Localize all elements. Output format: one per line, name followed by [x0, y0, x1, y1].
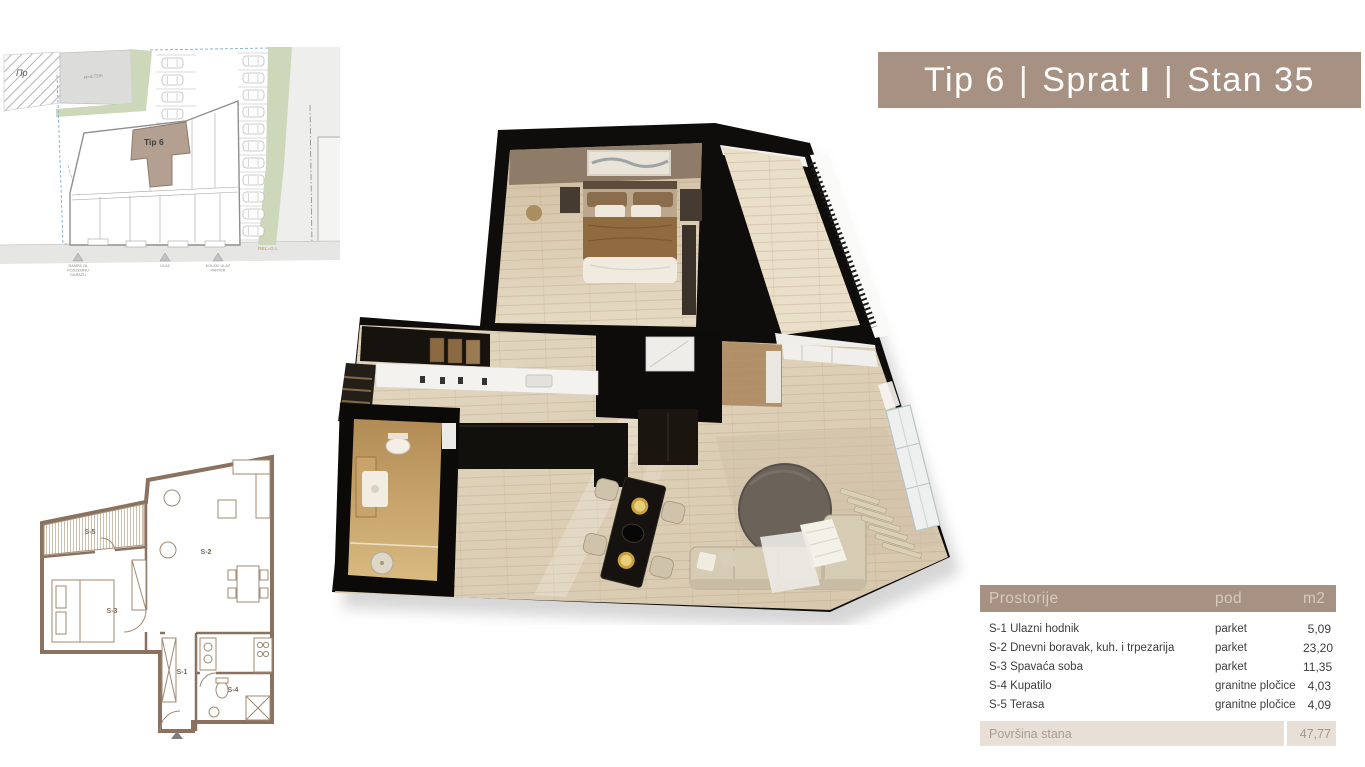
- column-header-m2: m2: [1303, 590, 1337, 608]
- room-area: 11,35: [1303, 660, 1337, 674]
- bedroom: [495, 143, 702, 327]
- table-row: S-2 Dnevni boravak, kuh. i trpezarija pa…: [980, 638, 1336, 657]
- pillow: [719, 550, 737, 568]
- page: Tip 6 | Sprat I | Stan 35: [0, 0, 1365, 767]
- title-banner: Tip 6 | Sprat I | Stan 35: [878, 52, 1361, 108]
- room-label-s5: S-5: [85, 529, 96, 536]
- table-header: Prostorije pod m2: [980, 585, 1336, 612]
- bed: [583, 181, 677, 283]
- site-plan: Пр H=4.72m: [0, 45, 340, 277]
- room-floor-material: parket: [1215, 642, 1303, 654]
- floor-plan-2d: S-5 S-3 S-2 S-1 S-4: [0, 400, 320, 767]
- column-header-prostorije: Prostorije: [980, 590, 1215, 608]
- sink: [526, 375, 552, 387]
- room-label-s1: S-1: [177, 669, 188, 676]
- toilet: [386, 438, 410, 454]
- marker-garage-label: PODZEMNU: [67, 269, 89, 273]
- regulation-label: REL=G.L: [258, 246, 278, 252]
- banner-separator: |: [1019, 61, 1029, 100]
- table-row: S-4 Kupatilo granitne pločice 4,03: [980, 676, 1336, 695]
- room-name: S-3 Spavaća soba: [980, 661, 1215, 673]
- area-table: Prostorije pod m2 S-1 Ulazni hodnik park…: [980, 585, 1336, 746]
- table-row: S-3 Spavaća soba parket 11,35: [980, 657, 1336, 676]
- nightstand: [560, 187, 580, 213]
- room-floor-material: parket: [1215, 623, 1303, 635]
- room-floor-material: granitne pločice: [1215, 680, 1303, 692]
- door: [766, 351, 781, 403]
- banner-apartment: Stan 35: [1187, 61, 1315, 100]
- banner-floor-label: Sprat: [1042, 61, 1131, 100]
- marker-garage-label: GARAŽU: [70, 272, 86, 277]
- room-name: S-2 Dnevni boravak, kuh. i trpezarija: [980, 642, 1215, 654]
- bathroom: [334, 403, 460, 597]
- room-name: S-4 Kupatilo: [980, 680, 1215, 692]
- banner-unit-type: Tip 6: [924, 61, 1006, 100]
- marker-entrance-label: ULAZ: [160, 264, 170, 268]
- marker-vehicle-label: PARTER: [210, 269, 225, 273]
- column-header-pod: pod: [1215, 590, 1303, 608]
- room-label-s4: S-4: [228, 687, 239, 694]
- room-label-s3: S-3: [107, 608, 118, 615]
- plant: [526, 205, 542, 221]
- room-area: 23,20: [1303, 641, 1338, 655]
- room-name: S-1 Ulazni hodnik: [980, 623, 1215, 635]
- table-body: S-1 Ulazni hodnik parket 5,09 S-2 Dnevni…: [980, 612, 1336, 714]
- room-area: 5,09: [1303, 622, 1336, 636]
- room-area: 4,03: [1303, 679, 1336, 693]
- zone-label: Пр: [16, 68, 28, 78]
- hatched-zone: [4, 52, 60, 111]
- room-name: S-5 Terasa: [980, 699, 1215, 711]
- banner-separator: |: [1164, 61, 1174, 100]
- bedroom-wardrobe: [682, 225, 696, 315]
- nightstand: [680, 189, 702, 221]
- table-row: S-5 Terasa granitne pločice 4,09: [980, 695, 1336, 714]
- unit-highlight-label: Tip 6: [144, 137, 164, 147]
- pillow: [696, 552, 716, 572]
- footer-total-area: 47,77: [1287, 721, 1336, 746]
- marker-garage-label: RAMPA ZA: [69, 264, 88, 268]
- room-label-s2: S-2: [201, 549, 212, 556]
- bathroom-door: [442, 423, 456, 449]
- hallway: [722, 341, 782, 407]
- render-3d: [330, 105, 970, 625]
- banner-floor-value: I: [1140, 61, 1151, 100]
- room-area: 4,09: [1303, 698, 1336, 712]
- footer-label: Površina stana: [980, 721, 1284, 746]
- table-footer: Površina stana 47,77: [980, 721, 1336, 746]
- room-floor-material: parket: [1215, 661, 1303, 673]
- room-floor-material: granitne pločice: [1215, 699, 1303, 711]
- table-row: S-1 Ulazni hodnik parket 5,09: [980, 619, 1336, 638]
- marker-vehicle-label: KOLSKI ULAZ: [206, 264, 231, 268]
